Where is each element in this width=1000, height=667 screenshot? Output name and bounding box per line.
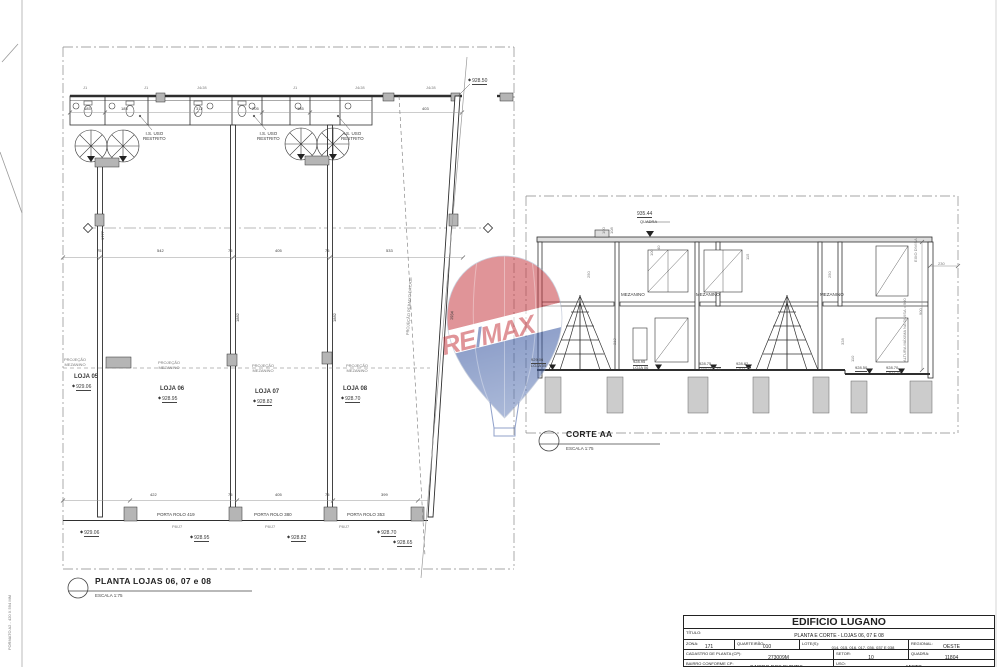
field-label: CADASTRO DE PLANTA (CP): [686, 651, 742, 656]
store-label: LOJA 06 [160, 386, 184, 393]
note-altura-maxima: ALTURA MÁXIMA NA DIVISA = 900 [903, 298, 908, 362]
plan-spiral-stairs [75, 128, 349, 167]
projection-mezzanine-label: PROJEÇÃOMEZANINO [64, 358, 86, 367]
field-label: BAIRRO CONFORME CP: [686, 661, 734, 666]
drawing-sheet: RE/MAX J1 J1 J4/J8 J1 J4/J8 J4/J8 928.50… [0, 0, 1000, 667]
dim: 405 [275, 249, 282, 254]
field-label: LOTE(S): [802, 641, 819, 646]
section-lot-boundary [526, 196, 958, 433]
plan-section-cutline [83, 223, 492, 232]
dim: 75 [228, 249, 232, 254]
section-top-level: 935.44 [637, 212, 652, 218]
dim-vertical: 1777 [101, 231, 106, 240]
plan-dimension-lines [61, 111, 465, 503]
field-label: QUARTEIRÃO: [737, 641, 765, 646]
title-block-row-bairro: BAIRRO CONFORME CP: BAIRRO DOS BURITIS U… [684, 660, 994, 667]
section-floor-level: 928.75MEDIO L.36 [699, 362, 721, 372]
dim: 185 [121, 107, 128, 112]
projection-mezzanine-label: PROJEÇÃOMEZANINO [252, 364, 274, 373]
section-floor-level: 928.82LOJA 07 [736, 362, 751, 372]
section-floor-level: 928.70LOJA 08 [886, 366, 901, 376]
dim: 422 [150, 493, 157, 498]
dim-vertical: 1882 [236, 313, 241, 322]
door-tag: P8/J7 [172, 525, 182, 530]
dim: 75 [97, 249, 101, 254]
store-label: LOJA 05 [74, 374, 98, 381]
section-floor-level: 928.50 [855, 366, 867, 372]
mezzanine-label: MEZANINO [820, 292, 844, 297]
dim: 399 [381, 493, 388, 498]
dim: 75 [325, 249, 329, 254]
titulo-label: TÍTULO: [686, 630, 701, 635]
store-level: 928.82 [253, 399, 272, 406]
level-marker: 928.82 [287, 535, 306, 542]
dim-vertical: 1934 [450, 311, 455, 320]
titulo-value: PLANTA E CORTE - LOJAS 06, 07 E 08 [684, 633, 994, 639]
dim-vertical: 40 [657, 246, 662, 250]
dim-vertical: 1882 [333, 313, 338, 322]
door-tag: P8/J7 [265, 525, 275, 530]
remax-balloon-watermark: RE/MAX [432, 252, 577, 437]
title-block-titulo: TÍTULO: PLANTA E CORTE - LOJAS 06, 07 E … [684, 629, 994, 640]
mezzanine-label: MEZANINO [696, 292, 720, 297]
dim-vertical: 900 [919, 308, 924, 315]
title-block: EDIFICIO LUGANO TÍTULO: PLANTA E CORTE -… [683, 615, 995, 667]
section-floor-level: 928.95LOJA 06 [633, 360, 648, 370]
dim: 230 [938, 262, 945, 267]
door-label: PORTA ROLO 353 [347, 512, 385, 517]
window-tag-j1: J1 [144, 86, 148, 91]
store-level: 929.06 [72, 384, 91, 391]
dim: 312 [196, 107, 203, 112]
plan-title: PLANTA LOJAS 06, 07 e 08 [95, 577, 211, 587]
note-eixo-divisa: EIXO DIVISA [914, 238, 919, 262]
window-tag-j48: J4/J8 [197, 86, 207, 91]
store-level: 928.95 [158, 396, 177, 403]
mezzanine-label: MEZANINO [621, 292, 645, 297]
title-block-row-zona: ZONA: 171 QUARTEIRÃO: 010 LOTE(S): 014, … [684, 640, 994, 651]
dim-vertical: 250 [587, 271, 592, 278]
section-floor-level: 929.06LOJA 05 [531, 358, 546, 368]
room-label-is: I.S. USORESTRITO [143, 131, 166, 141]
store-level: 928.70 [341, 396, 360, 403]
window-tag-j1: J1 [293, 86, 297, 91]
window-tag-j48: J4/J8 [355, 86, 365, 91]
dim-vertical: 313 [613, 338, 618, 345]
plan-scale: ESCALA 1:75 [95, 593, 123, 598]
room-label-is: I.S. USORESTRITO [257, 131, 280, 141]
level-marker: 928.70 [377, 530, 396, 537]
dim: 405 [275, 493, 282, 498]
level-marker: 928.65 [393, 540, 412, 547]
section-title: CORTE AA [566, 430, 612, 440]
projection-mezzanine-label: PROJEÇÃOMEZANINO [158, 361, 180, 370]
dim-vertical: 100 [602, 227, 607, 234]
title-block-building: EDIFICIO LUGANO [684, 616, 994, 629]
dim-vertical: 110 [851, 356, 856, 362]
room-label-is: I.S. USORESTRITO [341, 131, 364, 141]
dim-vertical: 115 [746, 254, 751, 260]
dim: 185 [84, 107, 91, 112]
sheet-format-label: FORMATO A2 - 420 X 594 MM [8, 595, 13, 650]
door-label: PORTA ROLO 419 [157, 512, 195, 517]
field-label: USO: [836, 661, 846, 666]
dim: 75 [228, 493, 232, 498]
dim: 403 [422, 107, 429, 112]
field-value: 014, 015, 016, 017, 036, 037 E 038 [818, 645, 908, 650]
store-label: LOJA 07 [255, 389, 279, 396]
dim: 542 [157, 249, 164, 254]
plan-leader-lines [139, 84, 470, 130]
dim: 75 [325, 493, 329, 498]
door-label: PORTA ROLO 380 [254, 512, 292, 517]
projection-mezzanine-label: PROJEÇÃOMEZANINO [346, 364, 368, 373]
dim-vertical: 108 [610, 227, 615, 234]
dim: 533 [386, 249, 393, 254]
plan-bath-fixtures [73, 101, 351, 117]
field-label: QUADRA: [911, 651, 929, 656]
field-label: REGIONAL: [911, 641, 933, 646]
window-tag-j1: J1 [83, 86, 87, 91]
section-top-level-label: QUADRA [640, 220, 657, 225]
window-tag-j48: J4/J8 [426, 86, 436, 91]
door-tag: P8/J7 [339, 525, 349, 530]
level-marker: 929.06 [80, 530, 99, 537]
dim: 205 [252, 107, 259, 112]
dim: 185 [297, 107, 304, 112]
section-scale: ESCALA 1:75 [566, 446, 594, 451]
dim-vertical: 100 [650, 249, 655, 256]
field-label: SETOR: [836, 651, 851, 656]
level-marker: 928.95 [190, 535, 209, 542]
level-marker-top-right: 928.50 [468, 78, 487, 85]
dim-vertical: 328 [841, 338, 846, 345]
title-block-row-cadastro: CADASTRO DE PLANTA (CP): 273009M SETOR: … [684, 650, 994, 660]
field-label: ZONA: [686, 641, 698, 646]
dim-vertical: 250 [828, 271, 833, 278]
store-label: LOJA 08 [343, 386, 367, 393]
